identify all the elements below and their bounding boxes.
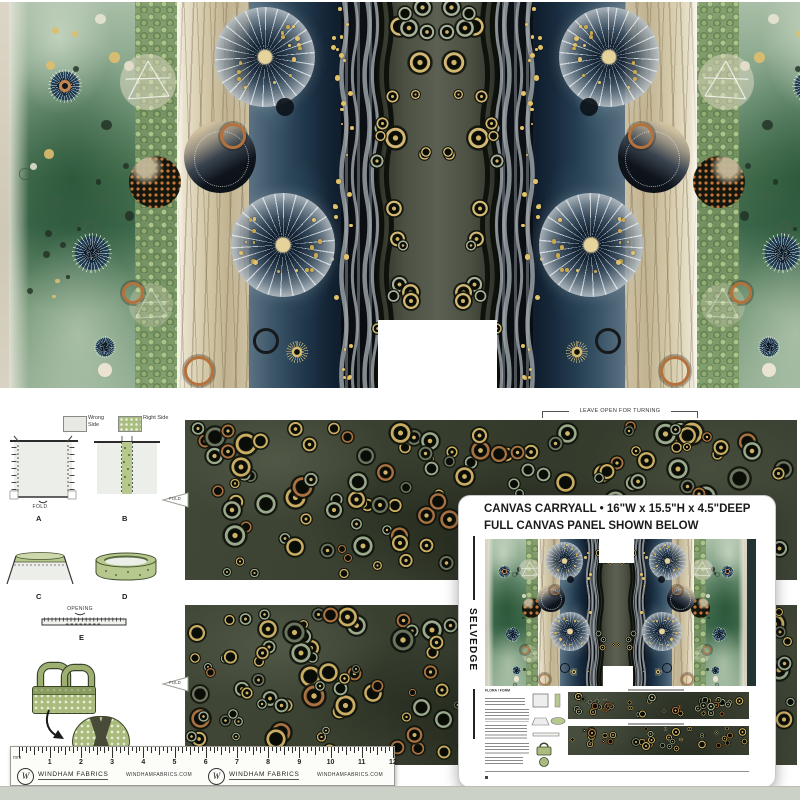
ruler-number: 8	[261, 759, 275, 766]
ruler-number: 7	[230, 759, 244, 766]
ruler-number: 3	[105, 759, 119, 766]
mini-text-lines	[485, 743, 529, 754]
ruler-number: 6	[199, 759, 213, 766]
mini-instruction-sheet: FLORA / FORM	[485, 689, 756, 767]
mini-text-lines	[485, 709, 529, 722]
card-corner-mark	[485, 776, 488, 779]
mini-strip-caption	[628, 689, 684, 691]
step-label-a: A	[36, 514, 41, 523]
mini-text-lines	[485, 725, 527, 740]
card-title: CANVAS CARRYALL • 16"W x 15.5"H x 4.5"DE…	[484, 503, 750, 515]
card-bottom-rule	[485, 771, 749, 772]
bracket-line-right	[671, 411, 698, 418]
spec-card: CANVAS CARRYALL • 16"W x 15.5"H x 4.5"DE…	[458, 495, 776, 788]
brand-name: WINDHAM FABRICS	[229, 771, 299, 780]
leave-open-label: LEAVE OPEN FOR TURNING	[580, 408, 661, 414]
fabric-panel-scan: Wrong Side Right Side FOLD A	[0, 0, 800, 800]
card-subtitle: FULL CANVAS PANEL SHOWN BELOW	[484, 520, 698, 532]
ruler: mm W WINDHAM FABRICS WINDHAMFABRICS.COM …	[10, 746, 395, 786]
fold-flag-2: FOLD	[160, 676, 190, 692]
wrong-side-swatch	[63, 416, 87, 432]
selvedge-rule-bottom	[473, 689, 475, 739]
scan-edge-band	[0, 786, 800, 800]
ruler-number: 1	[43, 759, 57, 766]
right-side-label: Right Side	[143, 415, 169, 422]
step-label-e: E	[79, 633, 84, 642]
fold-flag-label: FOLD	[169, 681, 181, 685]
diagram-e	[40, 616, 128, 628]
mini-sheet-title: FLORA / FORM	[485, 689, 510, 692]
right-side-swatch	[118, 416, 142, 432]
mini-text-lines	[485, 757, 523, 765]
mini-notch-bottom	[603, 666, 633, 686]
diagram-a	[8, 434, 80, 504]
mini-diagrams	[531, 691, 567, 767]
step-label-c: C	[36, 592, 41, 601]
ruler-number: 10	[324, 759, 338, 766]
mini-strip-caption	[628, 723, 684, 725]
wrong-side-label: Wrong Side	[88, 415, 114, 428]
ruler-number: 9	[292, 759, 306, 766]
ruler-number: 2	[74, 759, 88, 766]
ruler-number: 5	[168, 759, 182, 766]
mini-text-lines	[485, 698, 525, 706]
fold-label-a: FOLD	[24, 504, 56, 510]
brand-website: WINDHAMFABRICS.COM	[126, 772, 192, 778]
step-label-d: D	[122, 592, 127, 601]
step-label-b: B	[122, 514, 127, 523]
brand-website: WINDHAMFABRICS.COM	[317, 772, 383, 778]
mini-notch-top	[599, 539, 634, 563]
diagram-b	[94, 436, 160, 498]
ruler-number: 12	[386, 759, 400, 766]
mini-strip-1	[568, 692, 749, 719]
bracket-line-left	[542, 411, 569, 418]
diagram-c	[6, 548, 74, 586]
panel-cutout-notch	[378, 320, 497, 388]
ruler-number: 11	[355, 759, 369, 766]
windham-monogram-icon: W	[17, 768, 34, 785]
selvedge-label: SELVEDGE	[467, 608, 478, 671]
mini-strip-2	[568, 726, 749, 755]
ruler-unit-label: mm	[13, 755, 21, 761]
arrow-icon	[44, 708, 70, 742]
ruler-number: 4	[136, 759, 150, 766]
fold-flag-label: FOLD	[169, 497, 181, 501]
top-margin	[0, 0, 800, 2]
brand-name: WINDHAM FABRICS	[38, 771, 108, 780]
diagram-d	[94, 551, 158, 583]
windham-monogram-icon: W	[208, 768, 225, 785]
bag-bottom-view	[72, 716, 130, 750]
leave-open-note: LEAVE OPEN FOR TURNING	[540, 408, 700, 422]
selvedge-rule-top	[473, 536, 475, 600]
fold-flag-1: FOLD	[160, 492, 190, 508]
